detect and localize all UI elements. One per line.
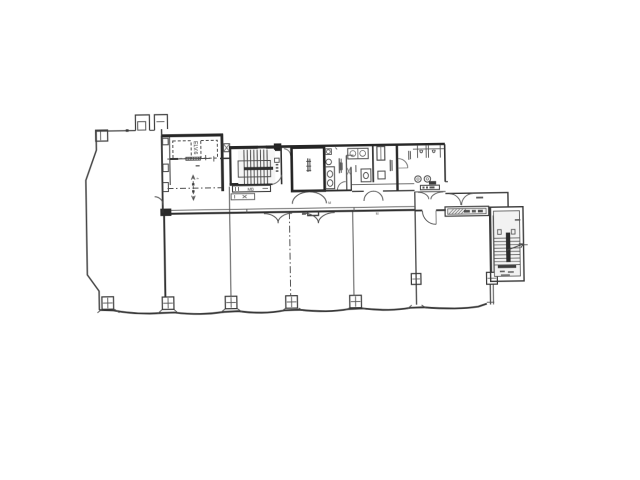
svg-text:4: 4 bbox=[195, 178, 199, 180]
svg-text:M: M bbox=[376, 212, 379, 216]
svg-text:ELV.6: ELV.6 bbox=[192, 141, 198, 154]
svg-text:M: M bbox=[328, 201, 331, 205]
svg-text:MB: MB bbox=[247, 187, 254, 192]
